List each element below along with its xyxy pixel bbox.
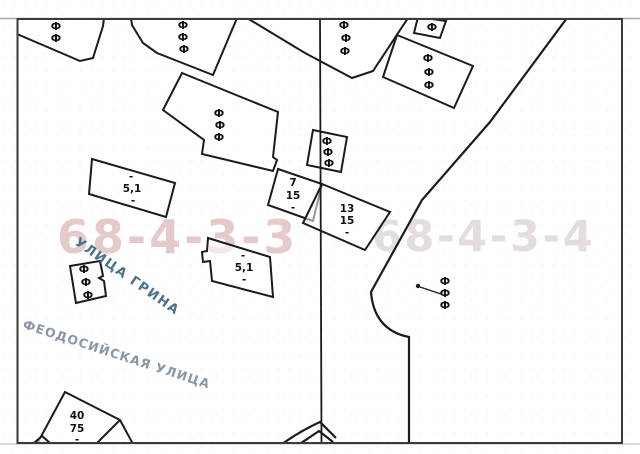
f-symbol-icon: Ф — [424, 80, 434, 92]
f-symbol-icon: Ф — [215, 120, 225, 132]
cadastral-quarter-watermark-right: 68-4-3-4 — [372, 212, 595, 262]
f-symbol-icon: Ф — [340, 46, 350, 58]
f-symbol-icon: Ф — [440, 288, 450, 300]
street-label-feodosiyskaya-ulitsa: ФЕОДОСИЙСКАЯ УЛИЦА — [21, 317, 212, 392]
building-outline-40-75 — [37, 392, 133, 444]
f-symbol-icon: Ф — [51, 33, 61, 45]
label-7-15-value: 15 — [286, 190, 301, 202]
label-51-lower-dash-top: - — [241, 250, 245, 262]
scanned-cadastral-map: 68-4-3-3 68-4-3-4 Ф Ф Ф Ф — [0, 0, 640, 454]
f-symbol-icon: Ф — [178, 32, 188, 44]
f-symbol-icon: Ф — [214, 108, 224, 120]
f-symbol-icon: Ф — [339, 20, 349, 32]
f-symbol-icon: Ф — [424, 67, 434, 79]
label-51-lower-dash-bottom: - — [242, 274, 246, 286]
f-symbol-icon: Ф — [179, 44, 189, 56]
label-7-15-number: 7 — [289, 177, 296, 189]
f-symbol-icon: Ф — [81, 277, 91, 289]
f-symbol-icon: Ф — [427, 22, 437, 34]
f-symbol-icon: Ф — [79, 264, 89, 276]
label-40-75-number: 40 — [70, 410, 85, 422]
label-51-lower-value: 5,1 — [235, 262, 254, 274]
f-symbol-icon: Ф — [51, 21, 61, 33]
f-symbol-icon: Ф — [214, 132, 224, 144]
f-symbol-icon: Ф — [341, 33, 351, 45]
building-outline-top-3 — [247, 18, 408, 78]
label-13-15-number: 13 — [340, 203, 355, 215]
f-symbol-icon: Ф — [423, 53, 433, 65]
label-51-upper-value: 5,1 — [123, 183, 142, 195]
f-symbol-icon: Ф — [440, 300, 450, 312]
leader-point — [416, 284, 420, 288]
label-13-15-dash: - — [345, 227, 349, 239]
label-51-upper-dash-bottom: - — [131, 195, 135, 207]
label-13-15-value: 15 — [340, 215, 355, 227]
f-symbol-icon: Ф — [83, 290, 93, 302]
map-canvas: 68-4-3-3 68-4-3-4 Ф Ф Ф Ф — [0, 0, 640, 454]
label-51-upper-dash-top: - — [129, 171, 133, 183]
f-symbol-icon: Ф — [178, 20, 188, 32]
quarter-boundary-vertical-line — [320, 18, 322, 444]
f-symbol-icon: Ф — [440, 276, 450, 288]
label-7-15-dash: - — [291, 202, 295, 214]
leader-line — [420, 287, 441, 294]
f-symbol-icon: Ф — [324, 158, 334, 170]
